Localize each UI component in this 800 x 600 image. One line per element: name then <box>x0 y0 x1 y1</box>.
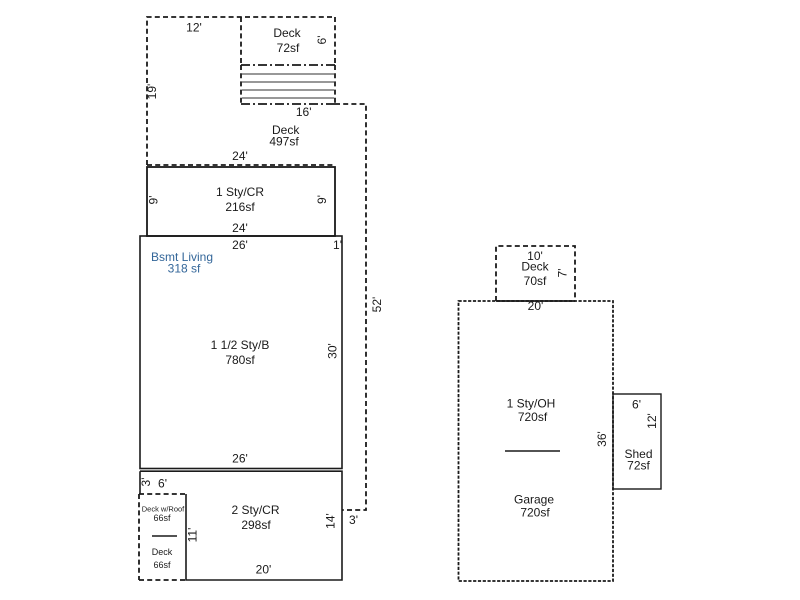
svg-text:Deck: Deck <box>521 260 549 274</box>
svg-text:16': 16' <box>296 105 312 119</box>
svg-text:30': 30' <box>326 343 340 359</box>
svg-text:6': 6' <box>158 477 167 491</box>
svg-text:6': 6' <box>315 36 329 45</box>
svg-text:26': 26' <box>232 452 248 466</box>
svg-text:14': 14' <box>324 513 338 529</box>
svg-text:720sf: 720sf <box>520 506 550 520</box>
svg-text:1 1/2 Sty/B: 1 1/2 Sty/B <box>211 338 270 352</box>
svg-text:720sf: 720sf <box>518 410 548 424</box>
svg-text:26': 26' <box>232 238 248 252</box>
svg-text:3': 3' <box>139 478 153 487</box>
svg-text:216sf: 216sf <box>225 200 255 214</box>
svg-text:12': 12' <box>645 413 659 429</box>
svg-text:2 Sty/CR: 2 Sty/CR <box>231 503 279 517</box>
svg-text:6': 6' <box>632 398 641 412</box>
svg-text:66sf: 66sf <box>153 560 171 570</box>
svg-text:1 Sty/CR: 1 Sty/CR <box>216 185 264 199</box>
svg-text:72sf: 72sf <box>277 41 300 55</box>
svg-text:36': 36' <box>595 431 609 447</box>
svg-text:Deck: Deck <box>152 547 173 557</box>
svg-text:1 Sty/OH: 1 Sty/OH <box>507 397 556 411</box>
svg-text:318 sf: 318 sf <box>168 262 201 276</box>
svg-text:52': 52' <box>370 297 384 313</box>
svg-text:497sf: 497sf <box>269 135 299 149</box>
svg-text:70sf: 70sf <box>524 274 547 288</box>
svg-text:Deck: Deck <box>273 26 301 40</box>
svg-text:1': 1' <box>333 238 342 252</box>
svg-text:11': 11' <box>186 528 200 543</box>
svg-text:7': 7' <box>556 269 570 278</box>
svg-text:72sf: 72sf <box>627 459 650 473</box>
svg-text:3': 3' <box>349 513 358 527</box>
svg-text:Garage: Garage <box>514 493 554 507</box>
svg-text:298sf: 298sf <box>241 518 271 532</box>
svg-text:66sf: 66sf <box>153 513 171 523</box>
svg-text:19': 19' <box>145 84 159 100</box>
svg-text:20': 20' <box>256 563 272 577</box>
svg-text:24': 24' <box>232 221 248 235</box>
svg-text:24': 24' <box>232 149 248 163</box>
svg-text:780sf: 780sf <box>225 353 255 367</box>
svg-text:9': 9' <box>147 196 161 205</box>
svg-text:20': 20' <box>528 299 544 313</box>
svg-text:12': 12' <box>186 21 202 35</box>
svg-text:9': 9' <box>315 195 329 204</box>
